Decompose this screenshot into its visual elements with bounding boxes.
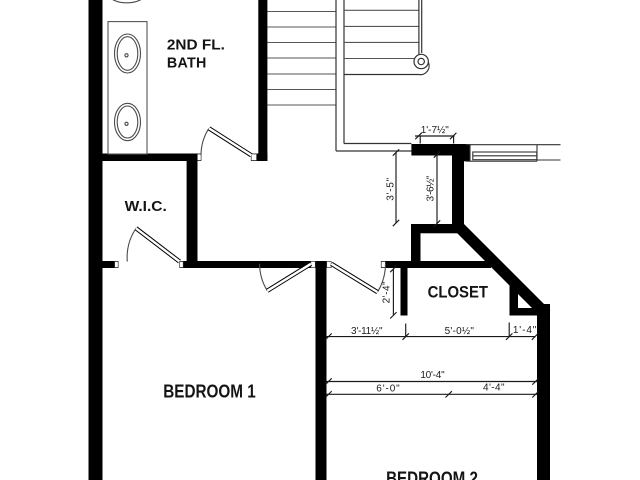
svg-text:5'-0½": 5'-0½" [445, 326, 475, 337]
svg-text:10'-4": 10'-4" [420, 370, 445, 381]
svg-text:BEDROOM 2: BEDROOM 2 [386, 468, 478, 480]
svg-text:6'-0": 6'-0" [376, 383, 400, 394]
svg-text:2ND FL.: 2ND FL. [167, 38, 225, 54]
svg-text:BATH: BATH [167, 56, 206, 72]
svg-text:BEDROOM 1: BEDROOM 1 [163, 381, 256, 401]
svg-text:3'-6½": 3'-6½" [425, 175, 436, 201]
svg-text:3'-5": 3'-5" [386, 177, 397, 200]
svg-text:2'-4": 2'-4" [381, 281, 392, 303]
svg-text:1'-7½": 1'-7½" [421, 125, 449, 136]
svg-text:3'-11½": 3'-11½" [351, 326, 383, 337]
svg-text:1'-4": 1'-4" [513, 325, 537, 336]
svg-text:CLOSET: CLOSET [428, 284, 488, 302]
svg-text:W.I.C.: W.I.C. [125, 199, 167, 215]
svg-text:4'-4": 4'-4" [483, 383, 505, 394]
